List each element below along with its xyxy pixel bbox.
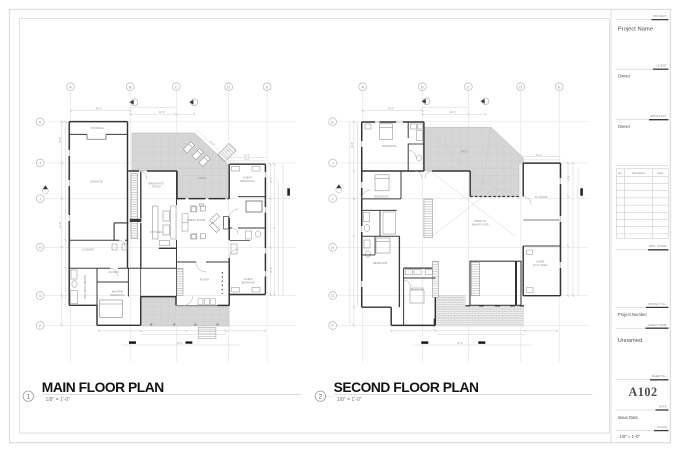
svg-text:G: G bbox=[39, 294, 42, 298]
svg-text:A102: A102 bbox=[628, 385, 657, 399]
svg-text:16'-2": 16'-2" bbox=[270, 267, 273, 273]
svg-text:J: J bbox=[332, 162, 334, 166]
svg-text:22'-8": 22'-8" bbox=[457, 342, 463, 345]
svg-text:A: A bbox=[69, 85, 72, 89]
svg-text:PATIO: PATIO bbox=[461, 150, 469, 154]
svg-text:Project Name: Project Name bbox=[618, 27, 653, 33]
svg-text:20'-6": 20'-6" bbox=[59, 137, 62, 143]
svg-text:17'-4": 17'-4" bbox=[270, 177, 273, 183]
svg-text:TV ROOM: TV ROOM bbox=[535, 195, 548, 199]
svg-text:26'-4": 26'-4" bbox=[177, 342, 183, 345]
svg-text:22'-6": 22'-6" bbox=[159, 110, 166, 114]
svg-text:1/8" = 1'-0": 1/8" = 1'-0" bbox=[337, 397, 362, 403]
svg-text:SCALE: SCALE bbox=[657, 425, 667, 429]
svg-text:H: H bbox=[39, 246, 42, 250]
svg-text:DATE: DATE bbox=[659, 404, 667, 408]
svg-text:24'-0": 24'-0" bbox=[59, 222, 62, 228]
svg-text:1: 1 bbox=[27, 393, 31, 400]
svg-text:PATIO: PATIO bbox=[199, 176, 207, 180]
svg-text:ARCHITECT: ARCHITECT bbox=[650, 114, 667, 118]
svg-text:BEDROOM: BEDROOM bbox=[410, 286, 425, 290]
svg-text:LAUNDRY: LAUNDRY bbox=[82, 248, 95, 252]
svg-text:24'-0": 24'-0" bbox=[388, 107, 395, 111]
svg-text:22'-6": 22'-6" bbox=[450, 110, 457, 114]
svg-text:I: I bbox=[40, 197, 41, 201]
svg-text:PROJECT: PROJECT bbox=[653, 14, 667, 18]
svg-text:K: K bbox=[39, 120, 42, 124]
svg-text:D: D bbox=[519, 85, 522, 89]
svg-text:16'-0": 16'-0" bbox=[209, 140, 216, 146]
svg-text:CLIENT: CLIENT bbox=[656, 64, 667, 68]
svg-text:Project Number: Project Number bbox=[618, 312, 648, 317]
svg-text:1/8" = 1'-0": 1/8" = 1'-0" bbox=[46, 397, 71, 403]
svg-text:14'-6": 14'-6" bbox=[568, 175, 571, 181]
svg-text:18'-0": 18'-0" bbox=[536, 154, 542, 157]
svg-text:Description: Description bbox=[632, 171, 646, 175]
svg-text:BEDROOM: BEDROOM bbox=[383, 144, 398, 148]
svg-text:BEDROOM: BEDROOM bbox=[375, 195, 390, 199]
svg-text:D: D bbox=[227, 85, 230, 89]
svg-text:Unnamed: Unnamed bbox=[618, 338, 642, 344]
svg-text:GARAGE: GARAGE bbox=[90, 180, 103, 184]
svg-text:SECOND FLOOR PLAN: SECOND FLOOR PLAN bbox=[334, 380, 479, 395]
svg-text:MAIN FLOOR: MAIN FLOOR bbox=[472, 222, 489, 226]
svg-text:FOYER: FOYER bbox=[200, 278, 209, 282]
svg-text:ROOM: ROOM bbox=[152, 185, 161, 189]
svg-text:C: C bbox=[175, 85, 178, 89]
svg-text:Issue Date: Issue Date bbox=[618, 415, 639, 420]
svg-text:MAIN FLOOR PLAN: MAIN FLOOR PLAN bbox=[42, 380, 164, 395]
svg-text:REG. STAMP: REG. STAMP bbox=[649, 244, 667, 248]
svg-text:BEDROOM: BEDROOM bbox=[241, 280, 256, 284]
svg-text:K: K bbox=[331, 120, 334, 124]
svg-text:B: B bbox=[421, 85, 424, 89]
svg-text:G: G bbox=[331, 294, 334, 298]
svg-text:C: C bbox=[467, 85, 470, 89]
svg-text:No.: No. bbox=[618, 171, 622, 175]
svg-text:PROJECT No.: PROJECT No. bbox=[648, 302, 667, 306]
svg-text:STORAGE: STORAGE bbox=[90, 126, 103, 130]
svg-text:Owner: Owner bbox=[618, 124, 631, 129]
svg-text:SHEET No.: SHEET No. bbox=[652, 374, 667, 378]
svg-text:2: 2 bbox=[319, 393, 323, 400]
svg-text:Date: Date bbox=[658, 171, 664, 175]
svg-text:E: E bbox=[558, 85, 561, 89]
svg-text:1/8" = 1'-0": 1/8" = 1'-0" bbox=[620, 434, 641, 439]
svg-text:J: J bbox=[39, 162, 41, 166]
svg-text:PLAY AREA: PLAY AREA bbox=[533, 263, 548, 267]
svg-text:GREAT ROOM: GREAT ROOM bbox=[187, 218, 206, 222]
svg-text:9'-0": 9'-0" bbox=[245, 158, 250, 161]
svg-text:KITCHEN: KITCHEN bbox=[151, 230, 163, 234]
svg-text:48'-0": 48'-0" bbox=[96, 107, 103, 111]
svg-text:I: I bbox=[332, 197, 333, 201]
svg-text:BEDROOM: BEDROOM bbox=[241, 179, 256, 183]
svg-text:Owner: Owner bbox=[618, 74, 631, 79]
svg-text:BEDROOM: BEDROOM bbox=[373, 261, 388, 265]
svg-text:BEDROOM: BEDROOM bbox=[111, 293, 126, 297]
svg-text:MASTER BATHROOM: MASTER BATHROOM bbox=[84, 275, 87, 298]
svg-text:SHEET NAME: SHEET NAME bbox=[648, 323, 667, 327]
svg-text:B: B bbox=[129, 85, 132, 89]
svg-text:20'-6": 20'-6" bbox=[351, 142, 354, 148]
svg-text:H: H bbox=[331, 246, 334, 250]
